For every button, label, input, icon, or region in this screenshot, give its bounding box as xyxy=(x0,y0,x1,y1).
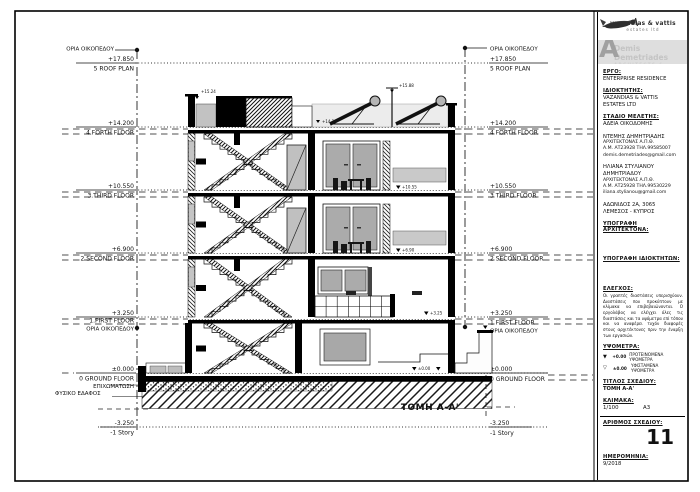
boundary-label-bottom-left: ΟΡΙΑ ΟΙΚΟΠΕΔΟΥ xyxy=(86,327,134,333)
project-section: ΕΡΓΟ: ENTERPRISE RESIDENCE xyxy=(603,69,683,83)
section-drawing: ΟΡΙΑ ΟΙΚΟΠΕΔΟΥ +17.850 5 ROOF PLAN +14.2… xyxy=(0,0,700,492)
level-value: ±0.000 xyxy=(112,366,134,373)
owner-line: VAZANDIAS & VATTIS xyxy=(603,95,683,102)
existing-level-symbol: ±0.00 xyxy=(613,366,628,371)
banner-architect-name: Demis Demetriades xyxy=(614,44,687,62)
signature-owners-heading: ΥΠΟΓΡΑΦΗ ΙΔΙΟΚΤΗΤΩΝ: xyxy=(603,256,683,262)
project-heading: ΕΡΓΟ: xyxy=(603,69,683,75)
owner-heading: ΙΔΙΟΚΤΗΤΗΣ: xyxy=(603,88,683,94)
drawing-title-section: ΤΙΤΛΟΣ ΣΧΕΔΙΟΥ: ΤΟΜΗ A-A' xyxy=(603,379,683,393)
story-ground: ±0.00 xyxy=(185,323,455,373)
drawing-sheet: ΟΡΙΑ ΟΙΚΟΠΕΔΟΥ +17.850 5 ROOF PLAN +14.2… xyxy=(0,0,700,492)
level-label: 0 GROUND FLOOR xyxy=(490,376,545,383)
level-value: -3.250 xyxy=(115,420,135,427)
story-2: +3.25 xyxy=(188,259,455,317)
level-label: 3.THIRD FLOOR xyxy=(87,193,134,200)
owner-section: ΙΔΙΟΚΤΗΤΗΣ: VAZANDIAS & VATTIS ESTATES L… xyxy=(603,88,683,109)
level-label: 2 SECOND FLOOR xyxy=(81,256,134,263)
level-label: 1.FIRST FLOOR xyxy=(89,318,134,325)
architect1-email: demis.demetriades@gmail.com xyxy=(603,153,683,159)
stage-section: ΣΤΑΔΙΟ ΜΕΛΕΤΗΣ: ΑΔΕΙΑ ΟΙΚΟΔΟΜΗΣ xyxy=(603,114,683,128)
boundary-label-top-right: ΟΡΙΑ ΟΙΚΟΠΕΔΟΥ xyxy=(490,47,538,53)
level-value: +14.200 xyxy=(108,120,134,127)
interior-wall xyxy=(308,133,315,190)
signature-owners-space xyxy=(603,263,683,280)
level-value: +6.900 xyxy=(112,246,134,253)
architect-banner: A Demis Demetriades ARCHITECTS & ASSOCIA… xyxy=(598,40,687,64)
level-value: +17.850 xyxy=(108,56,134,63)
control-notes: Οι γραπτές διαστάσεις υπερισχύουν. Διαστ… xyxy=(603,293,683,339)
level-label: -1 Story xyxy=(490,430,514,437)
level-label: 5 ROOF PLAN xyxy=(490,66,530,73)
banner-initial: A xyxy=(599,40,619,62)
biplane-logo-icon xyxy=(598,12,640,34)
scale-heading: ΚΛΙΜΑΚΑ: xyxy=(603,398,683,404)
level-value: -3.250 xyxy=(490,420,510,427)
parapet-left xyxy=(188,95,195,127)
date-value: 9/2018 xyxy=(603,461,683,468)
architect2-name: ΗΛΙΑΝΑ ΣΤΥΛΙΑΝΟΥ xyxy=(603,164,683,171)
roof-terrace: +15.24 +14.20 +15.88 xyxy=(185,83,457,127)
level-marker: +15.24 xyxy=(201,89,216,94)
level-label: 5 ROOF PLAN xyxy=(94,66,134,73)
level-label: 2 SECOND FLOOR xyxy=(490,256,543,263)
date-section: ΗΜΕΡΟΜΗΝΙΑ: 9/2018 xyxy=(603,454,683,468)
exterior-wall-right xyxy=(448,133,455,190)
level-value: +3.250 xyxy=(112,310,134,317)
drawing-title-value: ΤΟΜΗ A-A' xyxy=(603,386,683,393)
section-title: ΤΟΜΗ A-A' xyxy=(401,403,459,413)
level-label: 0 GROUND FLOOR xyxy=(79,376,134,383)
architect2-name2: ΔΗΜΗΤΡΙΑΔΟΥ xyxy=(603,171,683,178)
existing-level-marker-icon: ▽ xyxy=(603,365,610,371)
boundary-label-top-left: ΟΡΙΑ ΟΙΚΟΠΕΔΟΥ xyxy=(66,47,114,53)
boundary-label-bottom-right: ΟΡΙΑ ΟΙΚΟΠΕΔΟΥ xyxy=(490,329,538,335)
level-value: +3.250 xyxy=(490,310,512,317)
proposed-level-symbol: +0.00 xyxy=(612,354,626,359)
exterior-steps-right xyxy=(455,326,493,374)
level-value: +6.900 xyxy=(490,246,512,253)
level-value: +17.850 xyxy=(490,56,516,63)
scale-section: ΚΛΙΜΑΚΑ: 1/100 A3 xyxy=(603,398,683,411)
address-line: ΛΕΜΕΣΟΣ - ΚΥΠΡΟΣ xyxy=(603,209,683,216)
proposed-level-label: ΠΡΟΤΕΙΝΟΜΕΝΑ ΥΨΟΜΕΤΡΑ xyxy=(629,352,683,362)
drawing-number-section: ΑΡΙΘΜΟΣ ΣΧΕΔΙΟΥ: 11 xyxy=(603,420,683,448)
architect2-email: iliana.stylianou@gmail.com xyxy=(603,190,683,196)
balcony-rail xyxy=(393,168,446,182)
level-value: +10.550 xyxy=(108,183,134,190)
signature-architect-section: ΥΠΟΓΡΑΦΗ ΑΡΧΙΤΕΚΤΟΝΑ: xyxy=(603,221,683,251)
banner-architect-subtitle: ARCHITECTS & ASSOCIATES xyxy=(614,62,687,64)
stage-heading: ΣΤΑΔΙΟ ΜΕΛΕΤΗΣ: xyxy=(603,114,683,120)
level-value: +10.550 xyxy=(490,183,516,190)
control-section: ΕΛΕΓΧΟΣ: Οι γραπτές διαστάσεις υπερισχύο… xyxy=(603,286,683,339)
level-marker: +3.25 xyxy=(430,311,443,316)
paper-size: A3 xyxy=(643,405,650,411)
drawing-number: 11 xyxy=(603,427,683,448)
company-logo: vazandias & vattis estates ltd xyxy=(603,21,683,32)
parapet-right xyxy=(448,104,455,127)
title-block: vazandias & vattis estates ltd A Demis D… xyxy=(597,12,687,480)
scale-value: 1/100 xyxy=(603,405,643,411)
level-annotations-left: ΟΡΙΑ ΟΙΚΟΠΕΔΟΥ +17.850 5 ROOF PLAN +14.2… xyxy=(55,47,143,437)
drawing-title-heading: ΤΙΤΛΟΣ ΣΧΕΔΙΟΥ: xyxy=(603,379,683,385)
level-value: ±0.000 xyxy=(490,366,512,373)
architect2-section: ΗΛΙΑΝΑ ΣΤΥΛΙΑΝΟΥ ΔΗΜΗΤΡΙΑΔΟΥ ΑΡΧΙΤΕΚΤΟΝΑ… xyxy=(603,164,683,196)
level-marker: ±0.00 xyxy=(418,366,431,371)
stage-value: ΑΔΕΙΑ ΟΙΚΟΔΟΜΗΣ xyxy=(603,121,683,128)
architect1-section: ΝΤΕΜΗΣ ΔΗΜΗΤΡΙΑΔΗΣ ΑΡΧΙΤΕΚΤΟΝΑΣ Α.Π.Θ. Α… xyxy=(603,134,683,159)
project-name: ENTERPRISE RESIDENCE xyxy=(603,76,683,83)
level-label: 1 FIRST FLOOR xyxy=(490,320,535,327)
stair-bulkhead xyxy=(246,98,292,127)
level-label: -1 Story xyxy=(110,430,134,437)
level-marker: +6.90 xyxy=(402,248,415,253)
elevations-heading: ΥΨΟΜΕΤΡΑ: xyxy=(603,344,683,350)
existing-level-label: ΥΦΙΣΤΑΜΕΝΑ ΥΨΟΜΕΤΡΑ xyxy=(631,363,683,373)
elevations-legend: ΥΨΟΜΕΤΡΑ: ▼ +0.00 ΠΡΟΤΕΙΝΟΜΕΝΑ ΥΨΟΜΕΤΡΑ … xyxy=(603,344,683,373)
signature-owners-section: ΥΠΟΓΡΑΦΗ ΙΔΙΟΚΤΗΤΩΝ: xyxy=(603,256,683,280)
titleblock-separator xyxy=(600,416,685,417)
story-3: +6.90 xyxy=(188,196,455,253)
story-4: +10.55 xyxy=(188,133,455,190)
level-label: 4 FORTH FLOOR xyxy=(490,130,538,137)
signature-architect-heading: ΥΠΟΓΡΑΦΗ ΑΡΧΙΤΕΚΤΟΝΑ: xyxy=(603,221,683,233)
owner-line: ESTATES LTD xyxy=(603,102,683,109)
signature-architect-space xyxy=(603,234,683,251)
date-heading: ΗΜΕΡΟΜΗΝΙΑ: xyxy=(603,454,683,460)
address-line: ΑΔΩΝΙΔΟΣ 2Α, 3065 xyxy=(603,202,683,209)
address-section: ΑΔΩΝΙΔΟΣ 2Α, 3065 ΛΕΜΕΣΟΣ - ΚΥΠΡΟΣ xyxy=(603,202,683,216)
balustrade-grid xyxy=(315,294,395,317)
natural-ground-label: ΦΥΣΙΚΟ ΕΔΑΦΟΣ xyxy=(55,391,101,397)
proposed-level-marker-icon: ▼ xyxy=(603,354,609,360)
level-label: 3 THIRD FLOOR xyxy=(490,193,537,200)
control-heading: ΕΛΕΓΧΟΣ: xyxy=(603,286,683,292)
level-value: +14.200 xyxy=(490,120,516,127)
level-marker: +15.88 xyxy=(399,83,414,88)
level-label: 4.FORTH FLOOR xyxy=(86,130,134,137)
level-marker: +10.55 xyxy=(402,185,417,190)
